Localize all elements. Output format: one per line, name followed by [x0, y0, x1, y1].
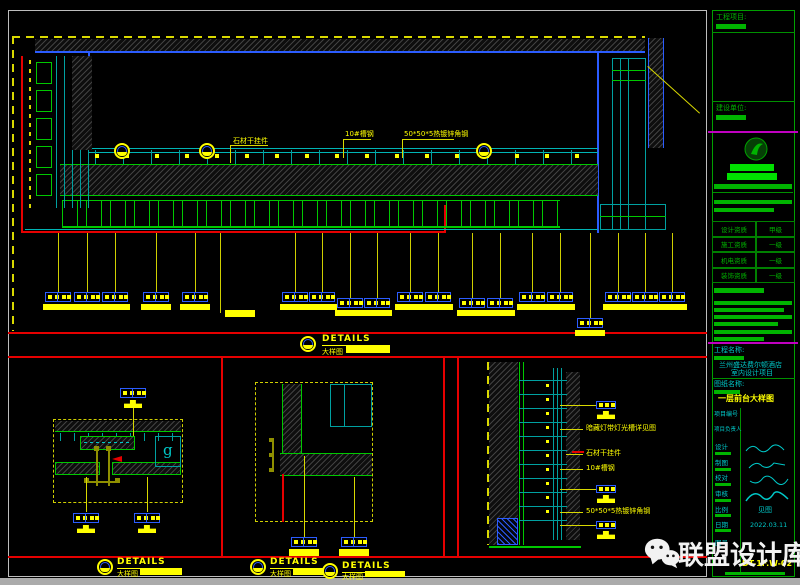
finish-tag-bar	[657, 304, 687, 310]
project-name-2: 室内设计项目	[731, 370, 773, 377]
watermark-brand: 联盟设计库	[678, 535, 800, 572]
section-bubble	[199, 143, 215, 159]
finish-tag-bar	[180, 304, 210, 310]
scale-value: 见图	[758, 507, 772, 514]
finish-tag-bar	[43, 304, 73, 310]
leader-line	[295, 233, 296, 292]
magenta-divider	[708, 342, 798, 344]
finish-tag-bar	[335, 310, 365, 316]
finish-tag	[73, 513, 99, 523]
leader-line	[115, 233, 116, 292]
callout-text: 石材干挂件	[586, 450, 621, 457]
leader-line	[560, 233, 561, 292]
finish-tag-bar	[423, 304, 453, 310]
finish-tag-bar	[395, 304, 425, 310]
finish-tag-bar	[545, 304, 575, 310]
finish-tag	[45, 292, 71, 302]
wechat-icon	[643, 536, 681, 570]
finish-tag-bar	[457, 310, 487, 316]
project-section-label: 工程项目:	[716, 14, 746, 21]
leader-line	[195, 233, 196, 292]
leader-line	[532, 233, 533, 292]
company-logo	[744, 137, 768, 161]
magenta-divider	[708, 131, 798, 133]
leader-line	[590, 233, 591, 318]
finish-tag	[102, 292, 128, 302]
elevation-tag	[596, 485, 616, 493]
drawing-name-label: 图纸名称:	[714, 381, 744, 388]
finish-tag	[143, 292, 169, 302]
leader-line	[672, 233, 673, 292]
finish-tag-bar	[362, 310, 392, 316]
finish-tag	[547, 292, 573, 302]
finish-tag-bar	[603, 304, 633, 310]
leader-line	[322, 233, 323, 292]
leader-line	[350, 233, 351, 298]
finish-tag-bar	[141, 304, 171, 310]
leader-line	[500, 233, 501, 298]
signature	[748, 472, 792, 486]
cove-light-row	[62, 200, 560, 228]
finish-tag-bar	[100, 304, 130, 310]
qualification-table: 设计资质甲级 施工资质一级 机电资质一级 装饰资质一级	[712, 221, 795, 283]
finish-tag	[364, 298, 390, 308]
leader-line	[87, 233, 88, 292]
finish-tag	[120, 388, 146, 398]
section-symbol: g	[163, 441, 173, 459]
finish-tag	[487, 298, 513, 308]
finish-tag	[341, 537, 367, 547]
finish-tag	[337, 298, 363, 308]
leader-line	[645, 233, 646, 292]
project-name-label: 工程名称:	[714, 347, 744, 354]
finish-tag	[397, 292, 423, 302]
bottom-bar	[0, 578, 800, 585]
callout-text: 10#槽钢	[345, 131, 374, 138]
finish-tag	[282, 292, 308, 302]
finish-tag	[291, 537, 317, 547]
finish-tag	[577, 318, 603, 328]
callout-text: 10#槽钢	[586, 465, 615, 472]
finish-tag-bar	[485, 310, 515, 316]
leader-line	[156, 233, 157, 292]
elevation-tag	[596, 521, 616, 529]
finish-tag	[605, 292, 631, 302]
leader-line	[220, 233, 221, 313]
finish-tag-bar	[72, 304, 102, 310]
signature	[744, 487, 792, 504]
finish-tag-bar	[280, 304, 310, 310]
leader-line	[618, 233, 619, 292]
leader-line	[58, 233, 59, 292]
callout-text: 50*50*5热镀锌角钢	[586, 508, 650, 515]
section-bubble	[114, 143, 130, 159]
finish-tag-bar	[575, 330, 605, 336]
finish-tag	[309, 292, 335, 302]
finish-tag	[519, 292, 545, 302]
finish-tag-bar	[225, 310, 255, 317]
date-value: 2022.03.11	[750, 522, 787, 529]
callout-text: 50*50*5热镀锌角钢	[404, 131, 468, 138]
finish-tag-bar	[307, 304, 337, 310]
finish-tag	[74, 292, 100, 302]
callout-text: 石材干挂件	[233, 138, 268, 145]
finish-tag-bar	[517, 304, 547, 310]
finish-tag	[134, 513, 160, 523]
client-section-label: 建设单位:	[716, 105, 746, 112]
cad-sheet: 石材干挂件 10#槽钢 50*50*5热镀锌角钢 DETAILS 大样图	[0, 0, 800, 585]
project-name: 兰州盛达费尔顿酒店	[719, 362, 782, 369]
finish-tag	[425, 292, 451, 302]
leader-line	[472, 233, 473, 298]
signature	[744, 441, 788, 455]
leader-line	[410, 233, 411, 292]
callout-text: 暗藏灯带灯光槽详见图	[586, 425, 656, 432]
finish-tag	[632, 292, 658, 302]
signature	[746, 457, 790, 471]
finish-tag	[659, 292, 685, 302]
finish-tag-bar	[630, 304, 660, 310]
leader-line	[377, 233, 378, 298]
detail-title-sub: 大样图	[322, 347, 343, 357]
elevation-tag	[596, 401, 616, 409]
section-bubble	[476, 143, 492, 159]
leader-line	[438, 233, 439, 292]
finish-tag	[182, 292, 208, 302]
drawing-name: 一层前台大样图	[718, 393, 774, 404]
finish-tag	[459, 298, 485, 308]
